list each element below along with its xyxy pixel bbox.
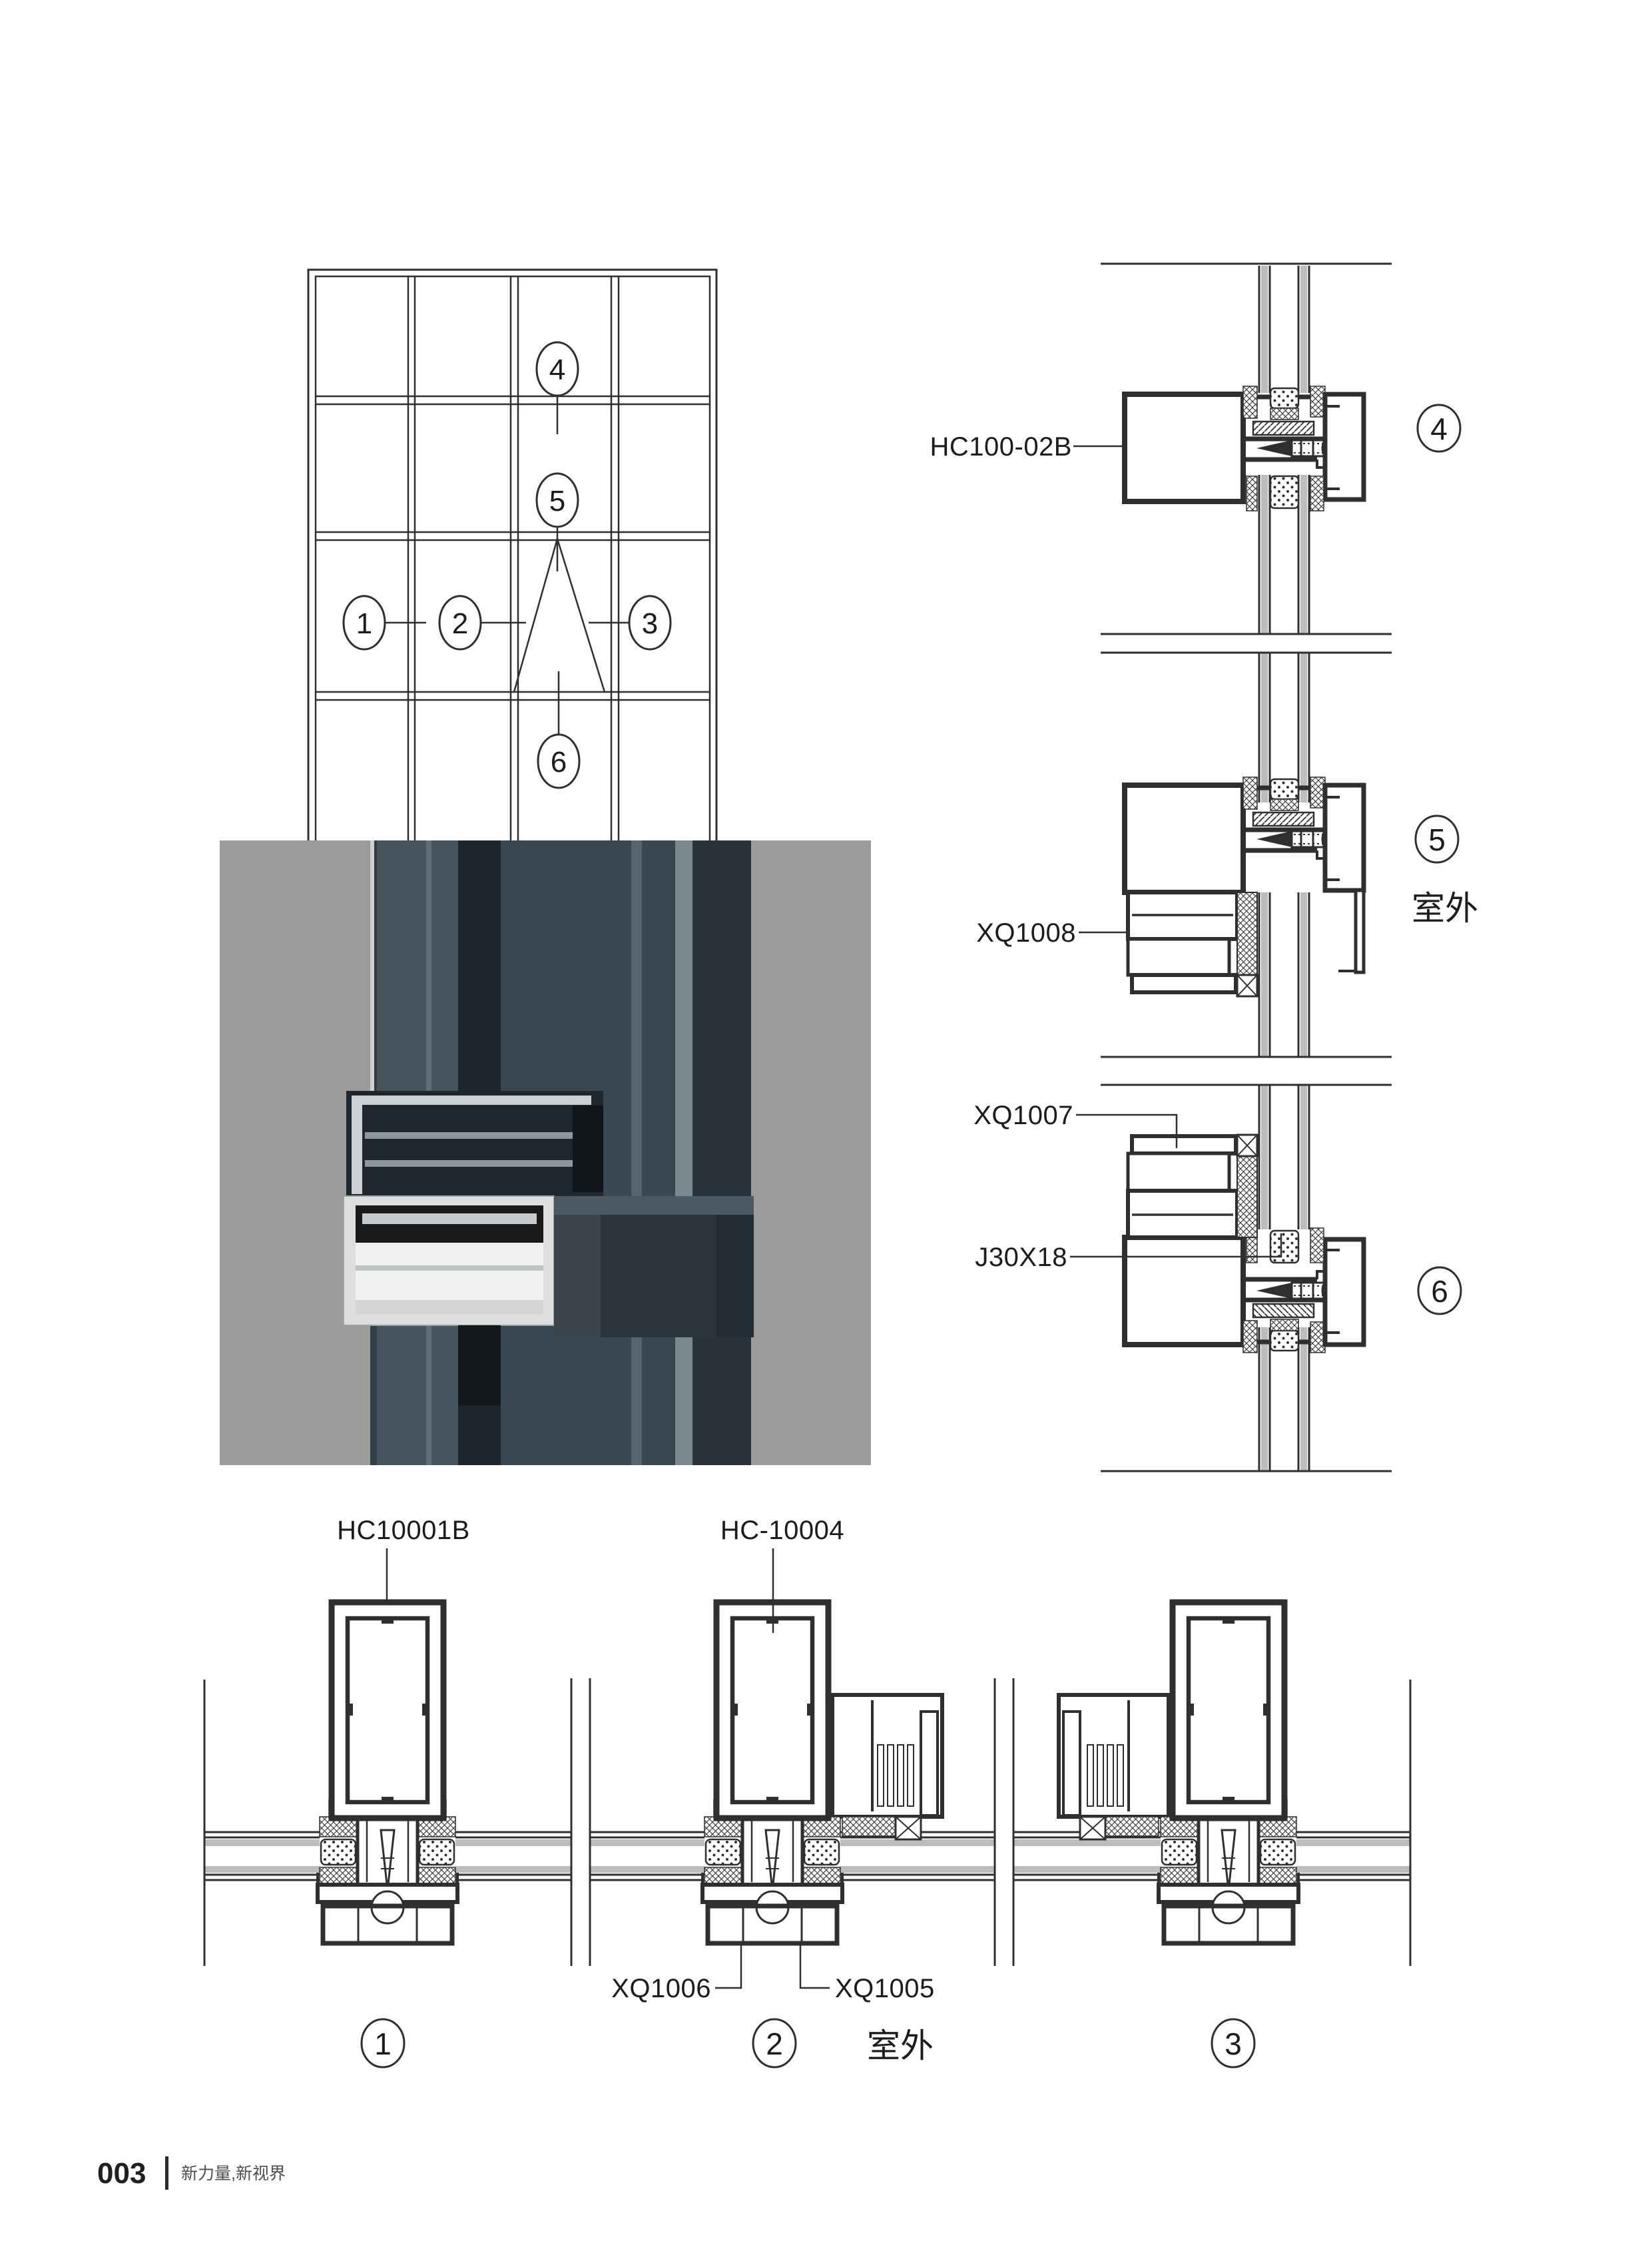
elevation-callout-1: 1 [356,607,372,640]
label-hc10001b: HC10001B [337,1516,470,1545]
horizontal-section-strip: HC10001B HC-10004 XQ1006 XQ1005 室外 1 2 3 [204,1516,1410,2067]
vertical-detail-6 [1125,1135,1364,1353]
horizontal-section-callouts: 1 2 3 [362,2019,1254,2067]
label-xq1008: XQ1008 [976,918,1076,948]
technical-drawing-sheet: 4 5 1 2 3 6 [0,0,1652,2241]
elevation-callout-6: 6 [551,746,567,779]
outdoor-label-right: 室外 [1412,890,1478,927]
vertical-section-callouts: 4 5 6 [1416,405,1461,1314]
section-callout-6: 6 [1431,1274,1448,1309]
elevation-key-plan [308,270,716,880]
label-j30x18: J30X18 [975,1243,1067,1272]
horizontal-detail-2 [702,1602,942,1943]
elevation-callout-5: 5 [549,485,565,517]
footer-divider [165,2156,168,2190]
footer-slogan: 新力量,新视界 [181,2164,286,2183]
label-xq1006: XQ1006 [611,1974,711,2003]
section-callout-3: 3 [1225,2027,1242,2061]
section-callout-2: 2 [766,2027,783,2061]
vertical-detail-4 [1125,386,1364,511]
horizontal-detail-1 [318,1602,457,1943]
section-callout-5: 5 [1428,822,1446,857]
label-hc-10004: HC-10004 [720,1516,844,1545]
elevation-callout-4: 4 [549,354,565,386]
section-callout-4: 4 [1430,412,1448,446]
catalog-page: 4 5 1 2 3 6 [0,0,1652,2241]
label-xq1007: XQ1007 [973,1101,1073,1130]
label-xq1005: XQ1005 [835,1974,935,2003]
label-hc100-02b: HC100-02B [930,432,1072,462]
elevation-callouts: 4 5 1 2 3 6 [344,342,671,788]
vertical-detail-5 [1125,777,1364,996]
elevation-callout-3: 3 [642,607,658,640]
outdoor-label-bottom: 室外 [867,2027,934,2065]
opening-window-symbol [514,539,605,692]
horizontal-detail-3 [1059,1602,1298,1943]
section-callout-1: 1 [374,2027,392,2061]
page-footer: 003 新力量,新视界 [97,2156,286,2190]
page-number: 003 [97,2157,146,2190]
vertical-section-strip: HC100-02B XQ1008 XQ1007 J30X18 室外 4 5 6 [930,264,1478,1471]
elevation-callout-2: 2 [452,607,468,640]
profile-photo [220,840,871,1465]
